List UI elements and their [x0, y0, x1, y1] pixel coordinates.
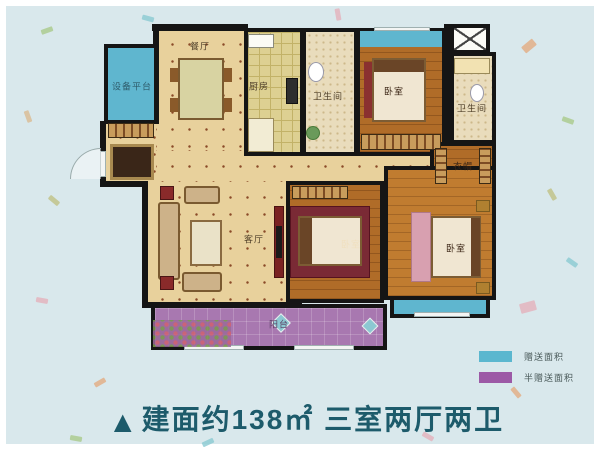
legend-row-half-gift-area: 半赠送面积 — [479, 371, 574, 384]
armchair — [182, 272, 222, 292]
label-bathroom-right: 卫生间 — [457, 102, 487, 115]
utility-shaft — [450, 24, 490, 54]
triangle-marker-icon: ▲ — [108, 406, 138, 439]
label-balcony: 阳台 — [269, 318, 289, 331]
bed-pillows — [471, 218, 480, 276]
confetti-piece — [41, 26, 54, 35]
confetti-piece — [94, 377, 107, 387]
label-living: 客厅 — [244, 233, 264, 246]
gift-area-swatch — [479, 351, 512, 362]
nightstand — [476, 200, 490, 212]
window — [374, 27, 430, 31]
half-gift-area-swatch — [479, 372, 512, 383]
shoe-cabinet — [108, 123, 154, 138]
plant — [306, 126, 320, 140]
legend: 赠送面积 半赠送面积 — [479, 350, 574, 392]
tv — [276, 226, 282, 258]
kitchen-counter — [248, 118, 274, 152]
bedside-rug — [364, 62, 372, 118]
label-equipment-platform: 设备平台 — [112, 80, 152, 93]
wall — [100, 121, 106, 151]
entry-rug — [110, 144, 154, 180]
kitchen-sink — [248, 34, 274, 48]
label-bedroom-top: 卧室 — [384, 85, 404, 98]
coffee-table — [190, 220, 222, 266]
bed-pillows — [374, 60, 424, 72]
dining-table — [178, 58, 224, 120]
floor-plan: 设备平台 餐厅 厨房 卫生间 卧室 卫生间 衣帽 客厅 卧室 卧室 阳台 — [64, 20, 498, 356]
dining-chair — [224, 98, 232, 112]
side-table — [160, 276, 174, 290]
half-gift-area-label: 半赠送面积 — [524, 371, 574, 384]
flower-bed — [153, 320, 231, 347]
window — [294, 345, 354, 350]
confetti-piece — [36, 297, 49, 304]
label-cloakroom: 衣帽 — [453, 160, 473, 173]
legend-row-gift-area: 赠送面积 — [479, 350, 574, 363]
armchair — [184, 186, 220, 204]
label-kitchen: 厨房 — [249, 80, 269, 93]
confetti-piece — [24, 110, 33, 123]
wall — [142, 181, 148, 308]
bath-cabinet — [454, 58, 490, 74]
confetti-piece — [566, 257, 579, 268]
caption: ▲建面约138㎡ 三室两厅两卫 — [6, 398, 600, 440]
bay-window-bedroom-top — [360, 31, 442, 47]
bed-pillows — [300, 218, 312, 264]
stove — [286, 78, 298, 104]
wardrobe — [292, 186, 348, 199]
confetti-piece — [521, 38, 537, 53]
confetti-piece — [334, 8, 341, 21]
window — [414, 312, 470, 317]
gift-area-label: 赠送面积 — [524, 350, 564, 363]
label-bedroom-master: 卧室 — [446, 242, 466, 255]
confetti-piece — [48, 195, 60, 207]
sofa — [158, 202, 180, 280]
label-bedroom-middle: 卧室 — [341, 238, 361, 251]
wardrobe — [361, 134, 441, 150]
confetti-piece — [547, 188, 557, 201]
confetti-piece — [562, 116, 575, 125]
toilet — [470, 84, 484, 102]
wardrobe — [435, 148, 447, 184]
dining-chair — [224, 68, 232, 82]
confetti-piece — [519, 300, 537, 314]
dining-chair — [170, 98, 178, 112]
entry-door-arc — [70, 148, 101, 179]
dining-chair — [170, 68, 178, 82]
side-table — [160, 186, 174, 200]
wardrobe — [479, 148, 491, 184]
bedside-rug — [411, 212, 431, 282]
toilet — [308, 62, 324, 82]
nightstand — [476, 282, 490, 294]
caption-text: 建面约138㎡ 三室两厅两卫 — [142, 404, 505, 435]
wall — [100, 181, 146, 187]
label-bathroom-top: 卫生间 — [313, 90, 343, 103]
wall — [152, 24, 248, 31]
label-dining: 餐厅 — [190, 40, 210, 53]
